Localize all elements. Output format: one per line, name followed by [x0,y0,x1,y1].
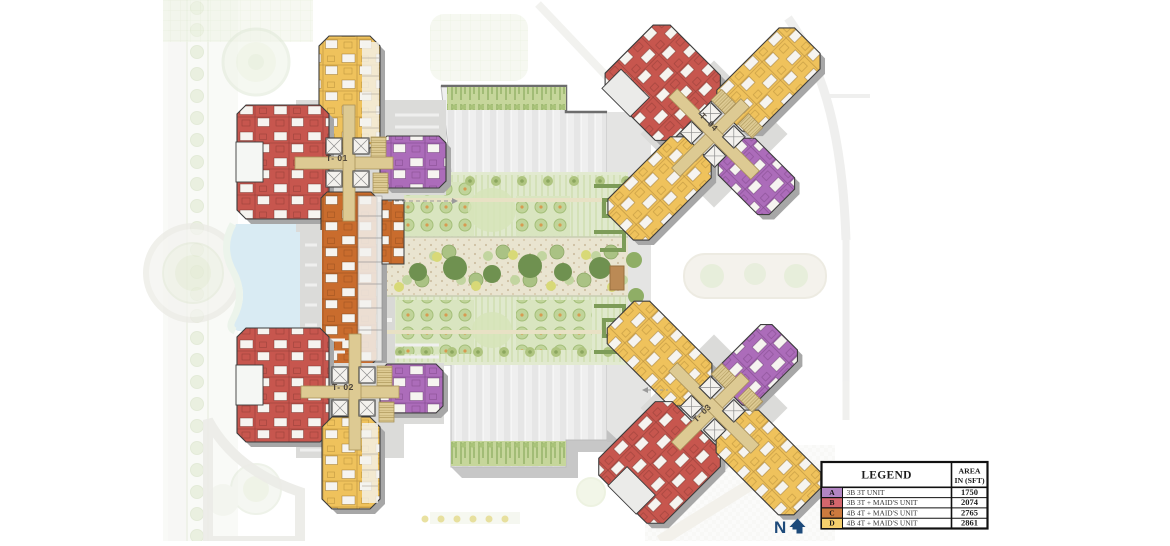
svg-text:2074: 2074 [961,497,979,507]
svg-text:AREA: AREA [958,467,980,476]
svg-text:2765: 2765 [961,507,978,517]
svg-text:B: B [829,498,834,507]
svg-text:T- 01: T- 01 [326,153,348,163]
svg-text:D: D [829,519,835,528]
svg-text:3B 3T UNIT: 3B 3T UNIT [847,488,886,497]
svg-text:3B 3T + MAID'S UNIT: 3B 3T + MAID'S UNIT [847,498,919,507]
svg-text:4B 4T + MAID'S UNIT: 4B 4T + MAID'S UNIT [847,519,919,528]
svg-text:IN (SFT): IN (SFT) [954,476,985,485]
svg-text:N: N [774,518,786,537]
svg-text:LEGEND: LEGEND [861,470,911,482]
svg-text:1750: 1750 [961,487,978,497]
svg-text:A: A [829,488,835,497]
svg-text:T- 02: T- 02 [332,382,354,392]
svg-text:4B 4T + MAID'S UNIT: 4B 4T + MAID'S UNIT [847,508,919,517]
svg-text:2861: 2861 [961,518,978,528]
svg-text:C: C [829,508,834,517]
